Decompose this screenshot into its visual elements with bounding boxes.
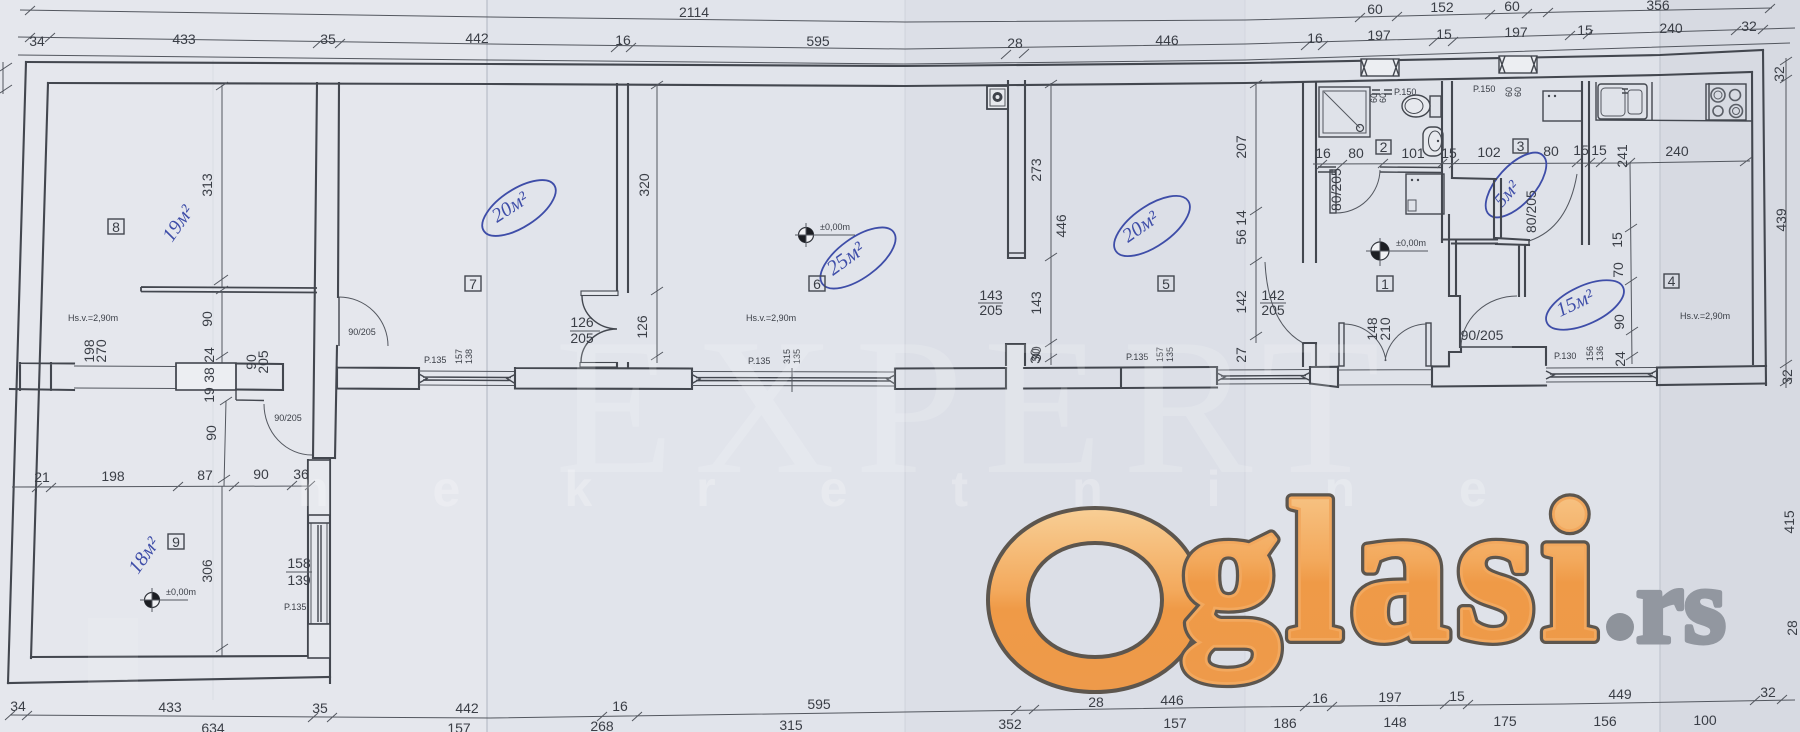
svg-text:2: 2 bbox=[1380, 139, 1388, 155]
svg-text:139: 139 bbox=[287, 572, 311, 588]
svg-text:15: 15 bbox=[1449, 688, 1465, 704]
svg-text:32: 32 bbox=[1779, 369, 1795, 385]
svg-text:38: 38 bbox=[201, 367, 217, 383]
svg-text:157: 157 bbox=[1163, 715, 1187, 731]
svg-text:446: 446 bbox=[1053, 214, 1069, 238]
svg-text:15: 15 bbox=[1441, 145, 1457, 161]
svg-text:4: 4 bbox=[1668, 273, 1676, 289]
svg-text:90: 90 bbox=[1611, 314, 1627, 330]
svg-text:±0,00m: ±0,00m bbox=[166, 587, 196, 597]
svg-text:16: 16 bbox=[1307, 30, 1323, 46]
svg-text:90: 90 bbox=[253, 466, 269, 482]
svg-text:415: 415 bbox=[1781, 510, 1797, 534]
svg-text:197: 197 bbox=[1378, 689, 1402, 705]
svg-text:60: 60 bbox=[1513, 87, 1523, 97]
svg-text:2114: 2114 bbox=[679, 4, 709, 20]
svg-text:15: 15 bbox=[1577, 22, 1593, 38]
svg-text:35: 35 bbox=[320, 31, 336, 47]
svg-text:157: 157 bbox=[447, 720, 471, 732]
svg-text:442: 442 bbox=[465, 30, 489, 46]
svg-text:28: 28 bbox=[1784, 620, 1800, 636]
svg-text:90/205: 90/205 bbox=[348, 327, 376, 337]
svg-text:±0,00m: ±0,00m bbox=[1396, 238, 1426, 248]
svg-text:70: 70 bbox=[1610, 262, 1626, 278]
svg-text:90/205: 90/205 bbox=[274, 413, 302, 423]
svg-text:80/205: 80/205 bbox=[1328, 168, 1344, 211]
svg-text:273: 273 bbox=[1028, 158, 1044, 182]
svg-text:90/205: 90/205 bbox=[1461, 327, 1504, 343]
svg-text:60: 60 bbox=[1378, 93, 1388, 103]
svg-text:34: 34 bbox=[10, 698, 26, 714]
svg-text:197: 197 bbox=[1367, 27, 1391, 43]
svg-text:35: 35 bbox=[312, 700, 328, 716]
svg-text:16: 16 bbox=[1312, 690, 1328, 706]
svg-text:24: 24 bbox=[1612, 351, 1628, 367]
svg-text:634: 634 bbox=[201, 720, 225, 732]
svg-text:197: 197 bbox=[1504, 24, 1528, 40]
svg-text:442: 442 bbox=[455, 700, 479, 716]
svg-text:148: 148 bbox=[1383, 714, 1407, 730]
svg-text:9: 9 bbox=[172, 534, 180, 550]
svg-text:102: 102 bbox=[1477, 144, 1501, 160]
svg-text:P.150: P.150 bbox=[1473, 84, 1495, 94]
svg-text:433: 433 bbox=[172, 31, 196, 47]
svg-text:198: 198 bbox=[101, 468, 125, 484]
svg-text:16: 16 bbox=[1315, 145, 1331, 161]
svg-text:138: 138 bbox=[464, 349, 474, 364]
svg-text:270: 270 bbox=[93, 339, 109, 363]
svg-text:15: 15 bbox=[1609, 232, 1625, 248]
svg-text:rs: rs bbox=[1636, 547, 1726, 666]
svg-text:21: 21 bbox=[34, 469, 50, 485]
svg-text:1: 1 bbox=[1381, 276, 1389, 292]
svg-text:268: 268 bbox=[590, 718, 614, 732]
svg-text:80: 80 bbox=[1543, 143, 1559, 159]
svg-text:glasi: glasi bbox=[1180, 461, 1604, 682]
svg-text:156: 156 bbox=[1585, 346, 1595, 361]
svg-text:315: 315 bbox=[779, 717, 803, 732]
svg-text:60: 60 bbox=[1367, 1, 1383, 17]
svg-text:6: 6 bbox=[813, 276, 821, 292]
svg-text:241: 241 bbox=[1614, 144, 1630, 168]
svg-text:136: 136 bbox=[1595, 346, 1605, 361]
svg-text:240: 240 bbox=[1665, 143, 1689, 159]
svg-text:90: 90 bbox=[199, 311, 215, 327]
svg-text:152: 152 bbox=[1430, 0, 1454, 15]
svg-text:5: 5 bbox=[1162, 276, 1170, 292]
svg-text:3: 3 bbox=[1517, 138, 1525, 154]
svg-text:15: 15 bbox=[1591, 142, 1607, 158]
svg-text:16: 16 bbox=[615, 32, 631, 48]
svg-text:205: 205 bbox=[255, 350, 271, 374]
svg-text:595: 595 bbox=[806, 33, 830, 49]
svg-text:32: 32 bbox=[1760, 684, 1776, 700]
svg-text:80: 80 bbox=[1348, 145, 1364, 161]
svg-text:446: 446 bbox=[1155, 32, 1179, 48]
svg-text:±0,00m: ±0,00m bbox=[820, 222, 850, 232]
svg-text:439: 439 bbox=[1773, 208, 1789, 232]
svg-text:P.130: P.130 bbox=[1554, 351, 1576, 361]
svg-text:P.135: P.135 bbox=[424, 355, 446, 365]
svg-text:60: 60 bbox=[1504, 0, 1520, 14]
svg-text:449: 449 bbox=[1608, 686, 1632, 702]
svg-text:80/205: 80/205 bbox=[1523, 190, 1539, 233]
svg-text:433: 433 bbox=[158, 699, 182, 715]
svg-text:32: 32 bbox=[1741, 18, 1757, 34]
svg-text:352: 352 bbox=[998, 716, 1022, 732]
svg-text:175: 175 bbox=[1493, 713, 1517, 729]
svg-text:19: 19 bbox=[201, 387, 217, 403]
svg-text:186: 186 bbox=[1273, 715, 1297, 731]
svg-text:P.135: P.135 bbox=[284, 602, 306, 612]
svg-text:313: 313 bbox=[199, 173, 215, 197]
svg-text:56: 56 bbox=[1233, 229, 1249, 245]
svg-text:14: 14 bbox=[1233, 210, 1249, 226]
svg-text:240: 240 bbox=[1659, 20, 1683, 36]
svg-text:306: 306 bbox=[199, 559, 215, 583]
svg-text:446: 446 bbox=[1160, 692, 1184, 708]
svg-text:15: 15 bbox=[1436, 26, 1452, 42]
svg-text:34: 34 bbox=[29, 33, 45, 49]
svg-text:595: 595 bbox=[807, 696, 831, 712]
svg-text:320: 320 bbox=[636, 173, 652, 197]
svg-text:Hs.v.=2,90m: Hs.v.=2,90m bbox=[68, 313, 118, 323]
svg-text:7: 7 bbox=[469, 276, 477, 292]
svg-text:156: 156 bbox=[1593, 713, 1617, 729]
svg-text:207: 207 bbox=[1233, 135, 1249, 159]
svg-text:157: 157 bbox=[454, 349, 464, 364]
svg-text:8: 8 bbox=[112, 219, 120, 235]
svg-text:32: 32 bbox=[1771, 66, 1787, 82]
svg-text:24: 24 bbox=[201, 347, 217, 363]
svg-text:90: 90 bbox=[203, 425, 219, 441]
svg-text:16: 16 bbox=[612, 698, 628, 714]
svg-text:28: 28 bbox=[1088, 694, 1104, 710]
svg-text:356: 356 bbox=[1646, 0, 1670, 13]
svg-text:87: 87 bbox=[197, 467, 213, 483]
svg-text:100: 100 bbox=[1693, 712, 1717, 728]
svg-text:Hs.v.=2,90m: Hs.v.=2,90m bbox=[1680, 311, 1730, 321]
svg-text:28: 28 bbox=[1007, 35, 1023, 51]
svg-text:158: 158 bbox=[287, 555, 311, 571]
svg-text:101: 101 bbox=[1401, 145, 1425, 161]
